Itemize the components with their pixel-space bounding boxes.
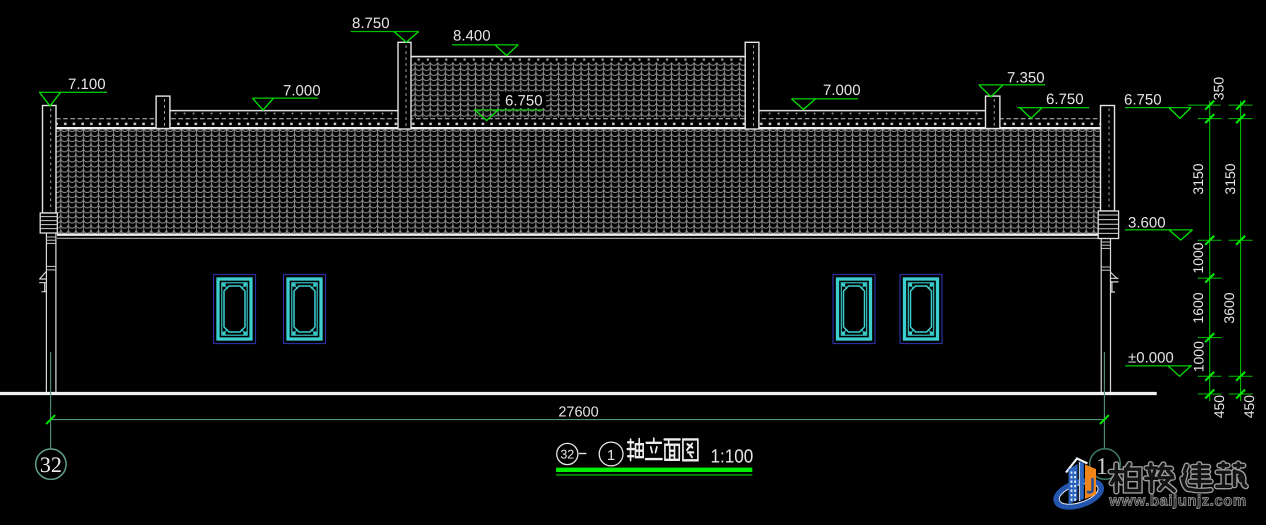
svg-text:8.400: 8.400 xyxy=(453,28,491,45)
svg-text:32: 32 xyxy=(40,452,62,477)
svg-text:7.350: 7.350 xyxy=(1007,70,1045,87)
svg-text:3150: 3150 xyxy=(1190,163,1206,194)
svg-text:27600: 27600 xyxy=(558,405,598,421)
svg-text:8.750: 8.750 xyxy=(352,15,390,32)
svg-text:1600: 1600 xyxy=(1190,292,1206,323)
svg-text:1000: 1000 xyxy=(1190,242,1206,273)
svg-text:7.000: 7.000 xyxy=(823,82,861,99)
svg-text:350: 350 xyxy=(1211,77,1227,101)
svg-text:www.baijunjz.com: www.baijunjz.com xyxy=(1108,493,1246,510)
svg-text:3150: 3150 xyxy=(1222,163,1238,194)
svg-text:450: 450 xyxy=(1241,395,1257,419)
svg-text:1: 1 xyxy=(1096,454,1108,480)
svg-text:6.750: 6.750 xyxy=(1124,92,1162,109)
svg-text:±0.000: ±0.000 xyxy=(1128,350,1174,367)
svg-text:7.100: 7.100 xyxy=(68,76,106,93)
svg-text:3.600: 3.600 xyxy=(1128,215,1166,232)
svg-text:1:100: 1:100 xyxy=(711,446,754,467)
svg-text:1: 1 xyxy=(607,448,615,464)
svg-text:450: 450 xyxy=(1211,395,1227,419)
svg-text:6.750: 6.750 xyxy=(505,93,543,110)
svg-text:3600: 3600 xyxy=(1221,292,1237,323)
svg-text:1000: 1000 xyxy=(1191,341,1207,372)
svg-text:7.000: 7.000 xyxy=(283,83,321,100)
svg-text:32: 32 xyxy=(560,448,574,462)
svg-text:6.750: 6.750 xyxy=(1046,91,1084,108)
